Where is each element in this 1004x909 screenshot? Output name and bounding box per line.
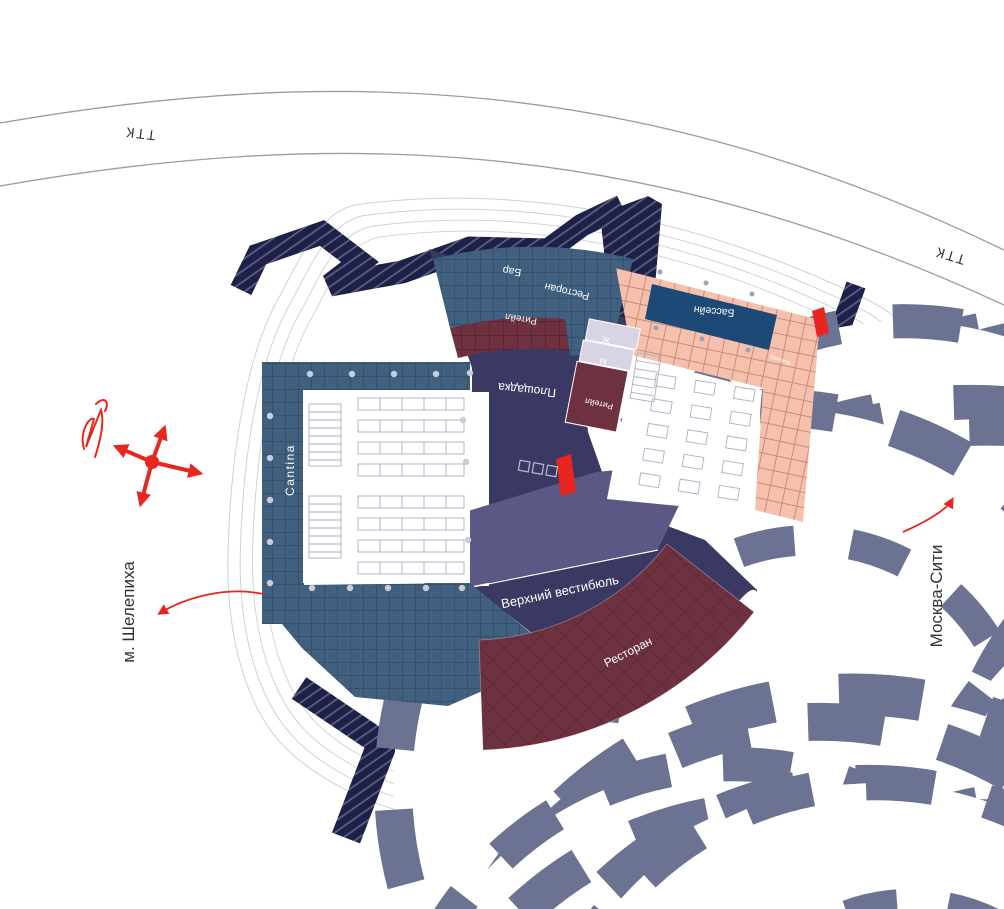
label-ttk-left: ТТК — [123, 124, 156, 144]
north-sketch — [83, 400, 107, 457]
site-plan-svg: ТТК ТТК м. Шелепиха Москва-Сити Cantina … — [0, 0, 1004, 909]
retail-side-block — [565, 361, 628, 432]
compass-rose — [83, 400, 199, 503]
arrow-to-metro — [160, 591, 263, 613]
cantina-building — [303, 390, 470, 583]
cantina-floor — [303, 390, 470, 583]
label-ttk-right: ТТК — [932, 244, 967, 268]
compass-arm — [152, 429, 164, 462]
label-cantina: Cantina — [283, 444, 297, 496]
site-plan-canvas: ТТК ТТК м. Шелепиха Москва-Сити Cantina … — [0, 0, 1004, 909]
label-metro: м. Шелепиха — [119, 561, 138, 663]
compass-arm — [117, 447, 152, 462]
compass-arm — [152, 462, 199, 473]
compass-arm — [141, 462, 152, 503]
road-edge-upper — [0, 91, 1004, 250]
label-city: Москва-Сити — [927, 545, 946, 648]
